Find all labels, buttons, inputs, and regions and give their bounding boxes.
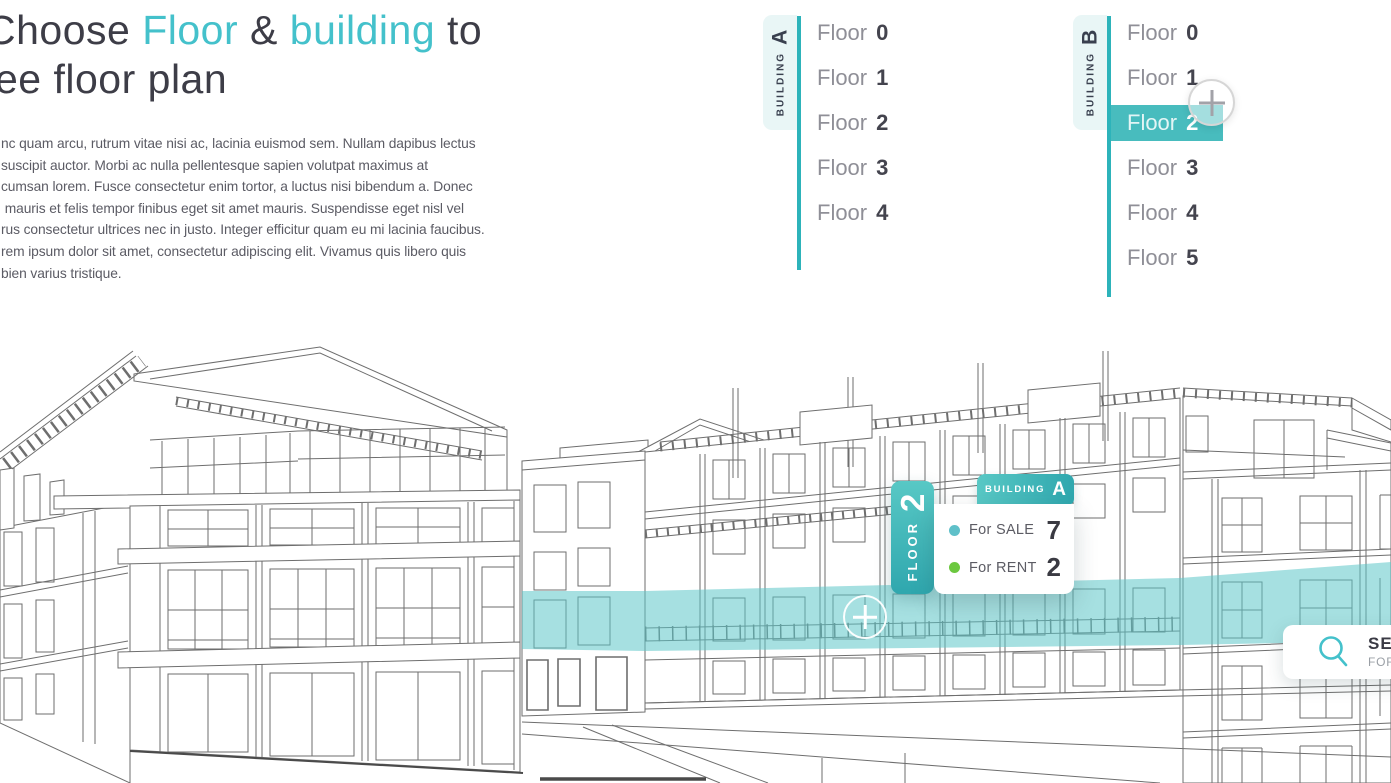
tooltip-building-letter: A [1052, 479, 1066, 501]
floor-item-a-1[interactable]: Floor1 [801, 55, 913, 100]
tooltip-building-label: BUILDING [985, 484, 1045, 495]
floor-item-a-3[interactable]: Floor3 [801, 145, 913, 190]
building-b-floor-list: Floor0 Floor1 Floor2 Floor3 Floor4 Floor… [1111, 10, 1223, 280]
floor-plan-picker-page: Choose Floor & building to see floor pla… [0, 0, 1391, 783]
buildings-wireframe-illustration [0, 300, 1391, 783]
page-title: Choose Floor & building to see floor pla… [0, 6, 482, 104]
floor-item-a-0[interactable]: Floor0 [801, 10, 913, 55]
for-sale-count: 7 [1047, 515, 1061, 546]
building-b-tab-label: BUILDING [1085, 51, 1096, 115]
tooltip-building-badge: BUILDING A [977, 474, 1074, 505]
zoom-plus-cursor-floor-list [1188, 79, 1235, 126]
tooltip-body: For SALE 7 For RENT 2 [934, 504, 1074, 594]
for-rent-dot-icon [949, 562, 960, 573]
search-icon [1317, 634, 1351, 670]
for-rent-count: 2 [1047, 552, 1061, 583]
zoom-plus-cursor-building [843, 595, 887, 639]
floor-item-a-4[interactable]: Floor4 [801, 190, 913, 235]
building-a-tab-label: BUILDING [775, 51, 786, 115]
for-sale-dot-icon [949, 525, 960, 536]
title-accent-floor: Floor [142, 7, 238, 53]
title-accent-building: building [290, 7, 435, 53]
for-sale-stat: For SALE 7 [949, 515, 1061, 546]
for-rent-stat: For RENT 2 [949, 552, 1061, 583]
page-title-line2: see floor plan [0, 55, 482, 104]
tooltip-floor-number: 2 [894, 494, 932, 512]
search-button[interactable]: SEA FOR [1283, 625, 1391, 679]
building-b-tab-letter: B [1078, 29, 1102, 44]
floor-item-a-2[interactable]: Floor2 [801, 100, 913, 145]
floor-stats-tooltip: FLOOR 2 BUILDING A For SALE 7 For RENT 2 [891, 474, 1074, 596]
page-title-line1: Choose Floor & building to [0, 6, 482, 55]
floor-item-b-3[interactable]: Floor3 [1111, 145, 1223, 190]
search-label: SEA FOR [1368, 635, 1391, 669]
tooltip-floor-label: FLOOR [905, 521, 920, 582]
floor-item-b-5[interactable]: Floor5 [1111, 235, 1223, 280]
tooltip-floor-tab: FLOOR 2 [891, 481, 934, 594]
building-a-tab[interactable]: BUILDING A [763, 15, 797, 130]
building-a-floor-list: Floor0 Floor1 Floor2 Floor3 Floor4 [801, 10, 913, 235]
building-a-tab-letter: A [768, 29, 792, 44]
floor-item-b-0[interactable]: Floor0 [1111, 10, 1223, 55]
building-b-tab[interactable]: BUILDING B [1073, 15, 1107, 130]
floor-item-b-4[interactable]: Floor4 [1111, 190, 1223, 235]
intro-paragraph: nc quam arcu, rutrum vitae nisi ac, laci… [1, 133, 485, 284]
